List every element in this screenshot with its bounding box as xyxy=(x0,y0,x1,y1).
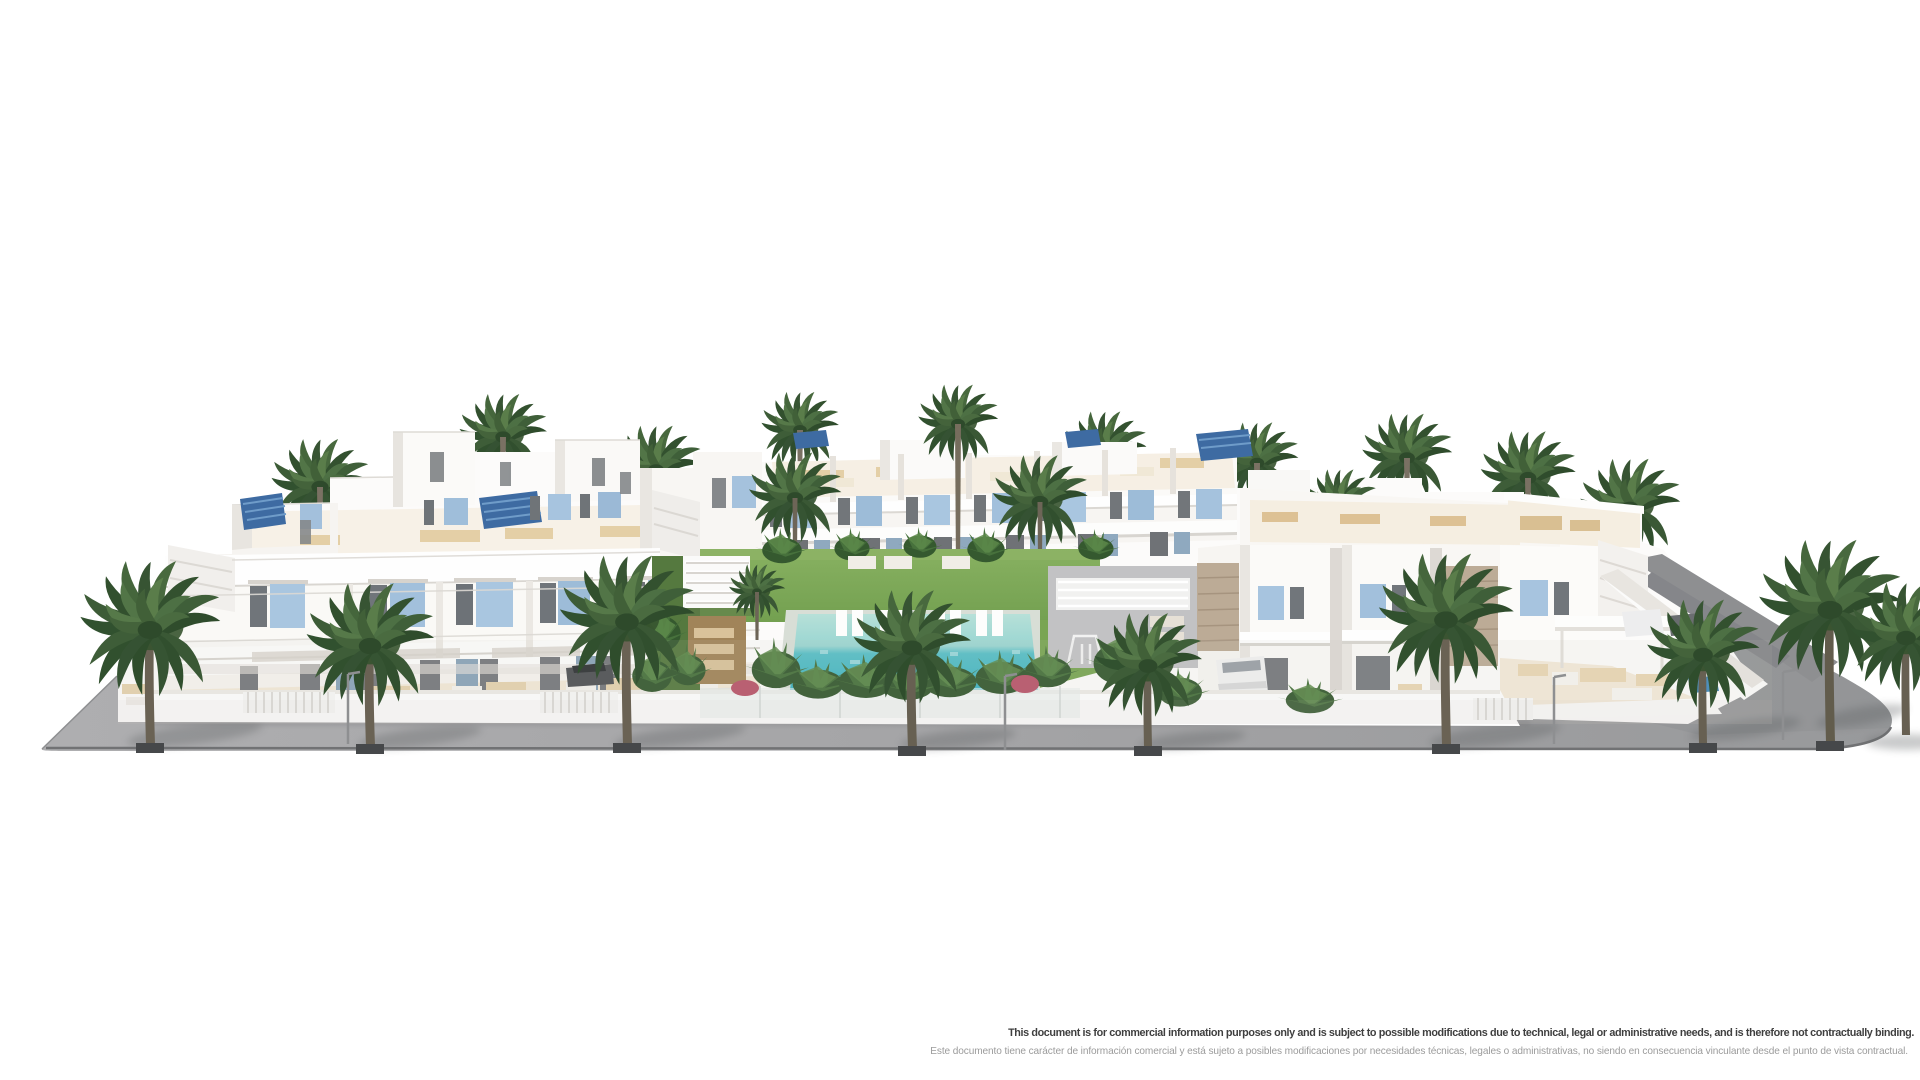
svg-text:This document is for commercia: This document is for commercial informat… xyxy=(1008,1027,1914,1039)
svg-text:Este documento tiene carácter: Este documento tiene carácter de informa… xyxy=(930,1046,1908,1057)
